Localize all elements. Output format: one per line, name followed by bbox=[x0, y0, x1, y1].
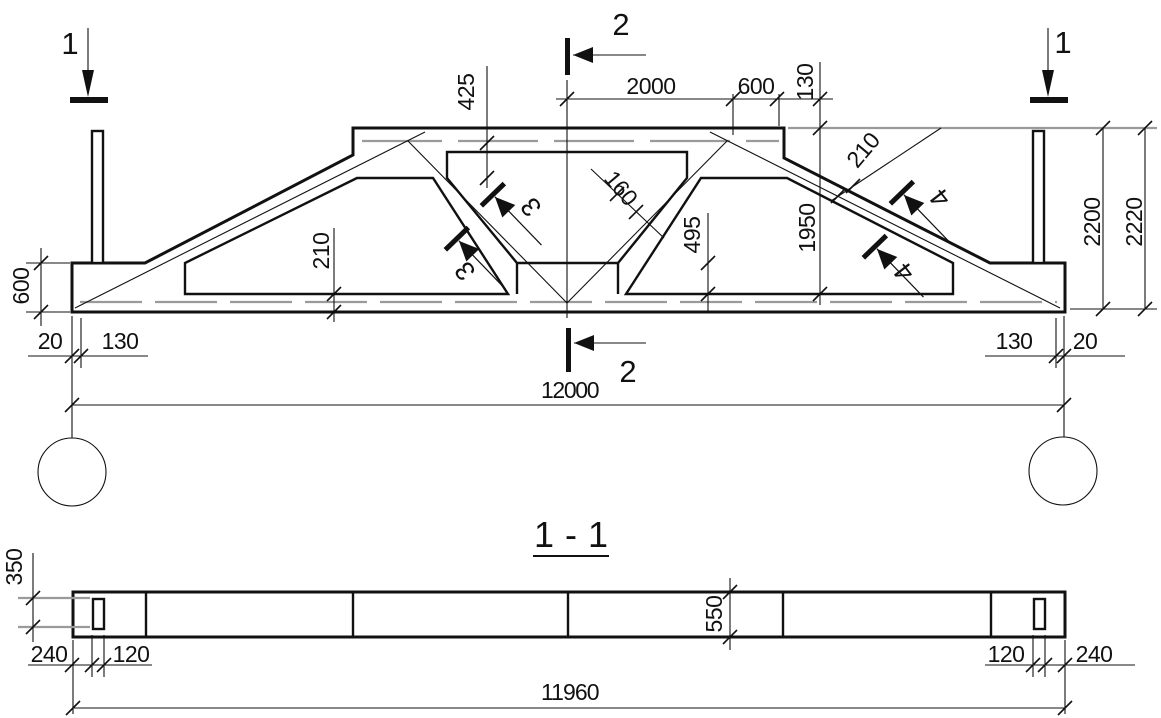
marker-label: 2 bbox=[612, 7, 629, 42]
dim-top-edge: 130 bbox=[792, 64, 818, 101]
left-dowel-post bbox=[92, 131, 103, 263]
dim-right-edge: 130 bbox=[996, 328, 1033, 354]
dim-length: 11960 bbox=[541, 679, 599, 705]
truss-drawing: 2000 600 130 425 1950 495 160 210 210 bbox=[0, 0, 1161, 718]
dim-right-end: 240 bbox=[1076, 641, 1113, 667]
dim-left-edge: 130 bbox=[102, 328, 139, 354]
marker-label: 1 bbox=[61, 26, 78, 61]
dim-bottom-chord-thickness: 210 bbox=[308, 233, 334, 270]
dim-top-haunch: 600 bbox=[738, 73, 775, 99]
left-dowel-hole bbox=[93, 599, 104, 629]
dim-total-length: 12000 bbox=[541, 377, 599, 403]
drawing-sheet: 2000 600 130 425 1950 495 160 210 210 bbox=[0, 0, 1161, 718]
dim-right-gap: 20 bbox=[1073, 328, 1098, 354]
dim-beam-depth: 550 bbox=[701, 596, 727, 633]
dim-top-half-span: 2000 bbox=[626, 73, 675, 99]
dim-right-hole: 120 bbox=[988, 641, 1025, 667]
dim-height-inner: 2200 bbox=[1079, 197, 1105, 246]
dim-left-end: 240 bbox=[31, 641, 68, 667]
section-title: 1 - 1 bbox=[534, 514, 608, 555]
right-dowel-hole bbox=[1034, 599, 1045, 629]
dim-left-gap: 20 bbox=[38, 328, 63, 354]
marker-label: 2 bbox=[619, 354, 636, 389]
dim-height-overall: 2220 bbox=[1121, 197, 1147, 246]
dim-end-block-height: 600 bbox=[8, 268, 34, 305]
dim-mid-height: 1950 bbox=[794, 203, 820, 252]
right-dowel-post bbox=[1033, 131, 1044, 263]
marker-label: 1 bbox=[1054, 25, 1071, 60]
dim-left-hole: 120 bbox=[113, 641, 150, 667]
dim-hole-height: 350 bbox=[1, 549, 27, 586]
dim-web-offset: 495 bbox=[679, 217, 705, 254]
dim-haunch-depth: 425 bbox=[453, 74, 479, 111]
